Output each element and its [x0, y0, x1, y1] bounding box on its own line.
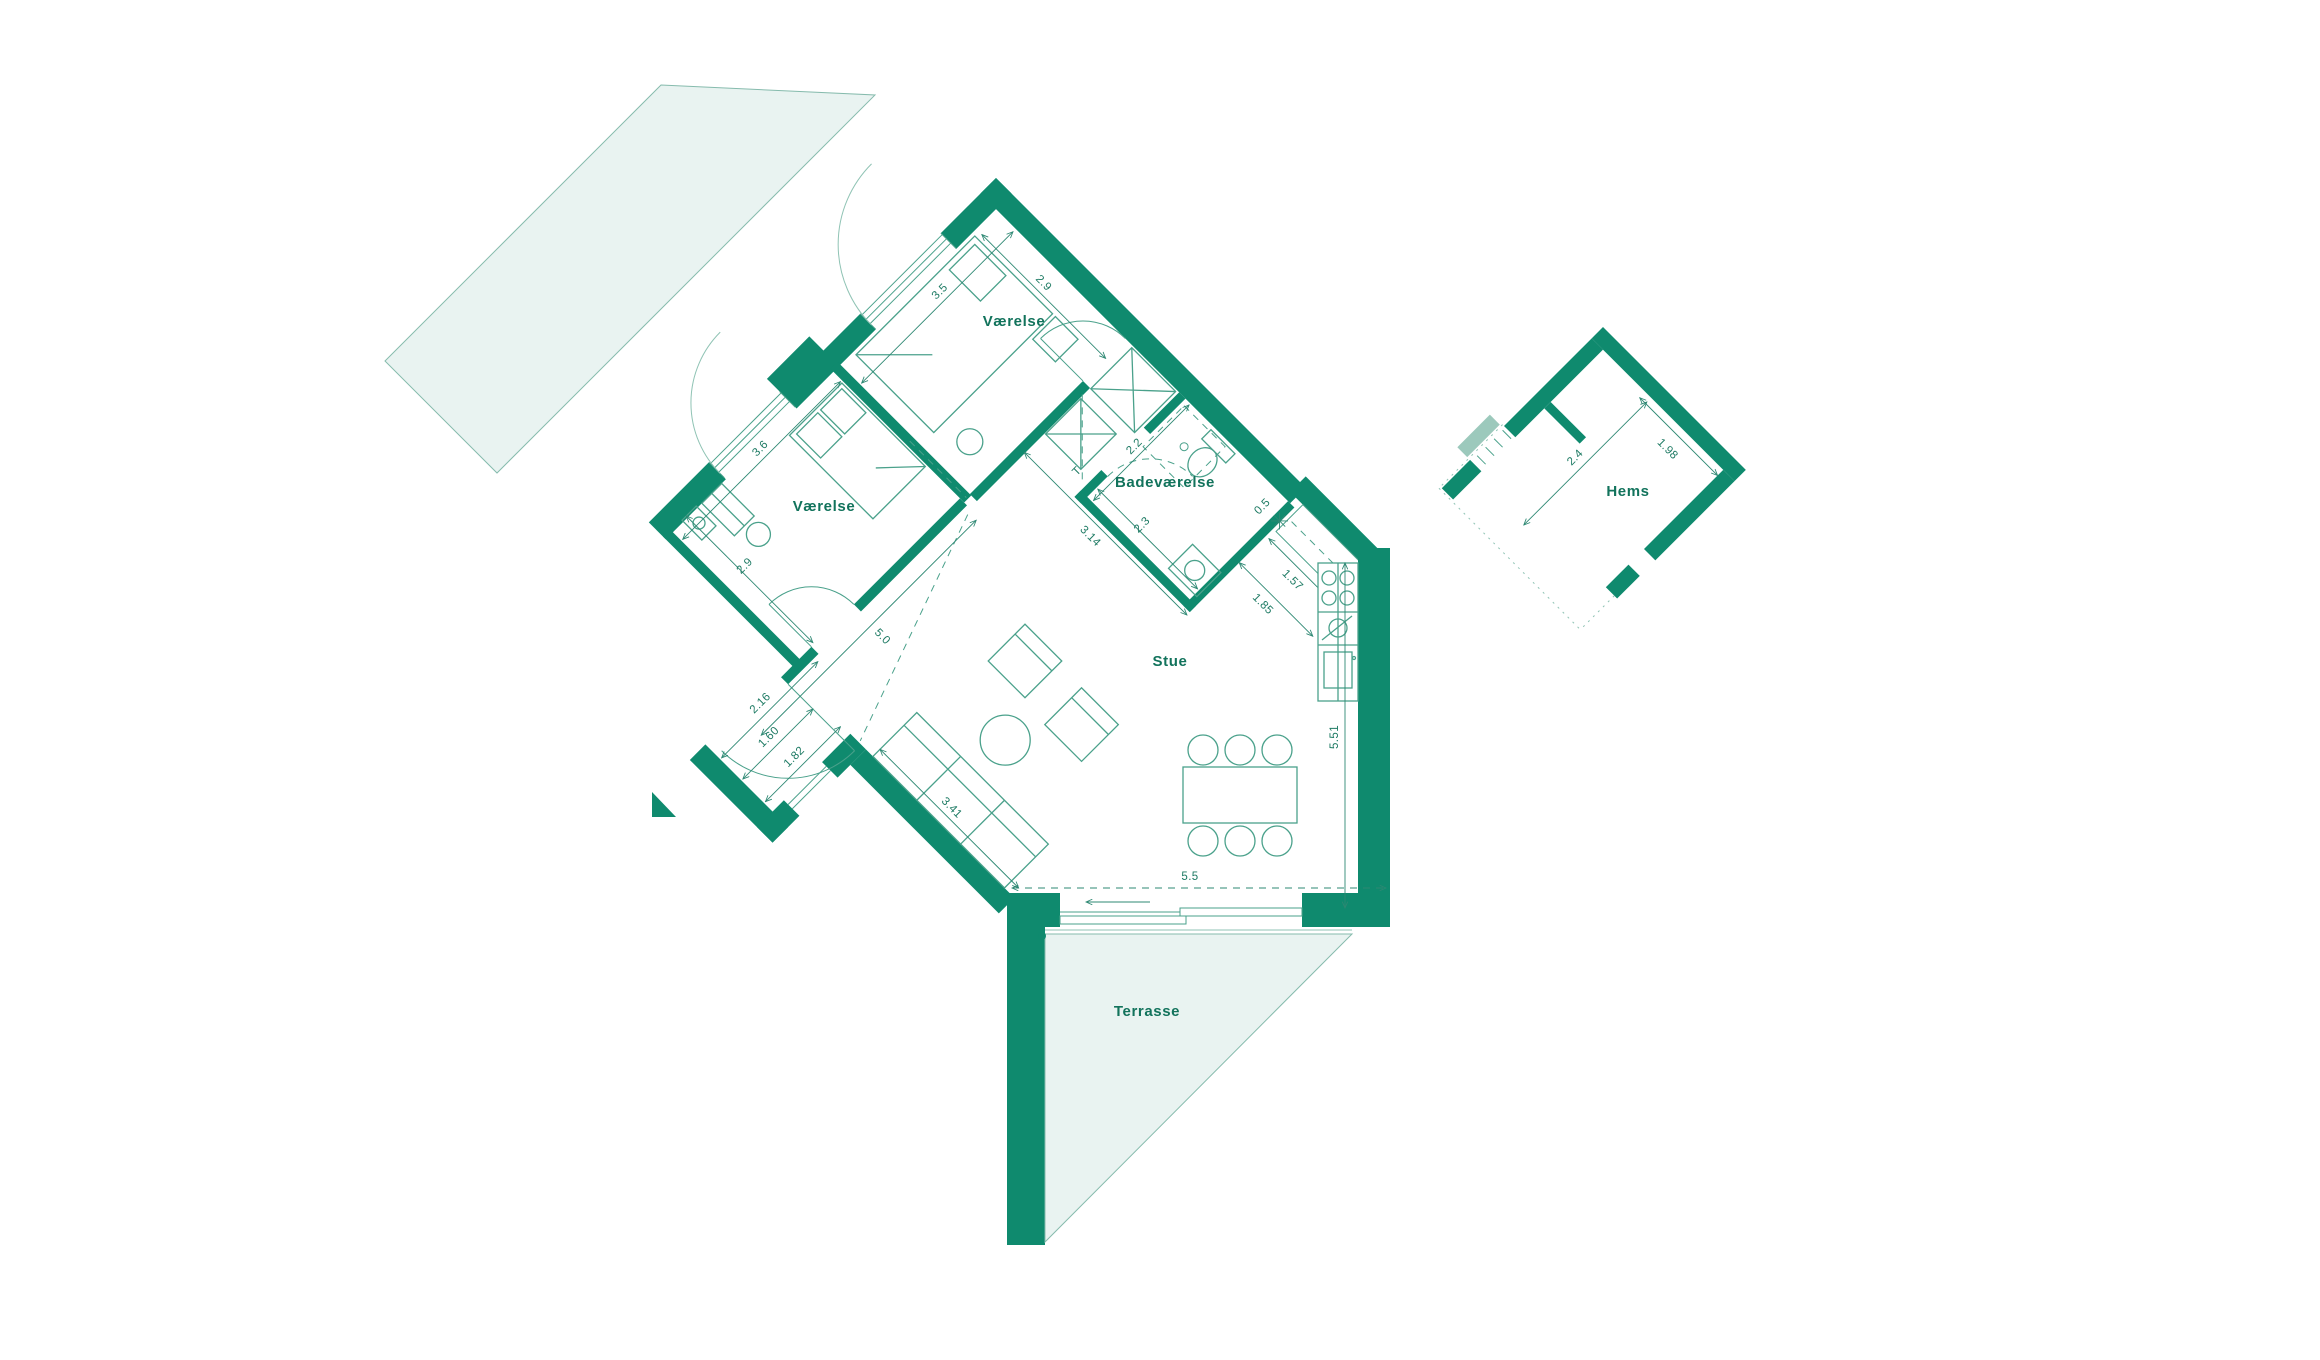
room-label-bathroom: Badeværelse — [1115, 474, 1215, 491]
bed-top-bedroom — [856, 236, 1053, 433]
sliding-door — [1060, 902, 1302, 924]
wall-top-bedroom-east — [970, 381, 1090, 501]
window-top-bedroom — [791, 164, 956, 329]
dim-line-hall — [761, 520, 976, 735]
dim-sofa-wall: 3.41 — [939, 795, 964, 820]
room-label-terrace: Terrasse — [1114, 1003, 1180, 1020]
wall-bath-east — [1183, 501, 1294, 612]
dim-entry-door: 1.60 — [756, 725, 781, 750]
room-label-living: Stue — [1153, 653, 1188, 670]
wall-sofa — [850, 749, 1014, 913]
loft-hatch — [1457, 415, 1499, 457]
loft-wall-se — [1644, 470, 1735, 561]
dim-bath-depth: 2.2 — [1124, 436, 1145, 457]
dim-loft-depth: 2.4 — [1565, 447, 1586, 468]
terrace-deck — [1045, 934, 1352, 1242]
wall-right — [1358, 548, 1390, 927]
dim-kitchen-niche: 0.5 — [1252, 496, 1273, 517]
dim-entry-side: 1.82 — [782, 744, 807, 769]
wall-bottom-left-pier — [1007, 893, 1060, 927]
floor-plan-page: 2.9 3.5 3.6 2.9 5.0 2.16 1.60 1.82 3.41 … — [0, 0, 2320, 1360]
dim-line-bath-width — [1098, 489, 1198, 589]
entry-marker-icon — [652, 792, 676, 817]
dim-terrace-door: 5.5 — [1181, 871, 1198, 883]
wall-left-bedroom-east — [854, 498, 967, 611]
armchair-1 — [988, 624, 1062, 698]
room-label-left-bedroom: Værelse — [793, 498, 856, 515]
loft-wall-inner — [1544, 402, 1586, 444]
room-label-top-bedroom: Værelse — [983, 313, 1046, 330]
stool — [741, 517, 775, 551]
loft-dotted-outline — [1439, 425, 1644, 630]
wall-bath-w1 — [1144, 392, 1186, 434]
window-left-bedroom — [650, 332, 796, 478]
dining-chairs — [1188, 735, 1292, 856]
wall-bath-south — [1074, 491, 1196, 613]
dim-left-room-width: 2.9 — [735, 556, 756, 577]
coffee-table — [970, 705, 1041, 776]
dining-table — [1183, 767, 1297, 823]
chair-top-bedroom — [951, 423, 988, 460]
dim-hall: 5.0 — [872, 627, 893, 648]
floor-plan-svg: 2.9 3.5 3.6 2.9 5.0 2.16 1.60 1.82 3.41 … — [0, 0, 2320, 1360]
wall-bottom-right-pier — [1302, 893, 1390, 927]
dim-entry-wall: 2.16 — [748, 691, 773, 716]
door-left-bedroom — [769, 562, 854, 647]
roof-shade-band — [385, 85, 875, 473]
dim-top-room-width: 2.9 — [1033, 273, 1054, 294]
dim-bath-width: 2.3 — [1132, 515, 1153, 536]
dim-line-top-room-depth — [862, 232, 1013, 383]
dim-line-left-room-depth — [683, 382, 841, 540]
loft-wall-nw — [1504, 338, 1603, 437]
dim-left-room-depth: 3.6 — [750, 439, 771, 460]
armchair-2 — [1045, 688, 1119, 762]
dim-top-room-depth: 3.5 — [930, 282, 951, 303]
wall-ne — [980, 178, 1305, 503]
terrace-post — [1038, 932, 1046, 940]
loft-wall-se-stub — [1606, 565, 1640, 599]
dim-loft-width: 1.98 — [1655, 437, 1680, 462]
dim-line-entry-door — [743, 709, 813, 779]
loft-inset-group: 2.4 1.98 — [1428, 314, 1746, 632]
dim-living-height: 5.51 — [1329, 725, 1341, 749]
room-label-loft: Hems — [1606, 483, 1649, 500]
dim-line-loft-depth — [1524, 402, 1647, 525]
wall-left-bedroom-south — [663, 529, 804, 670]
wall-terrace-left — [1007, 927, 1045, 1245]
dim-line-left-room-width — [686, 516, 813, 643]
